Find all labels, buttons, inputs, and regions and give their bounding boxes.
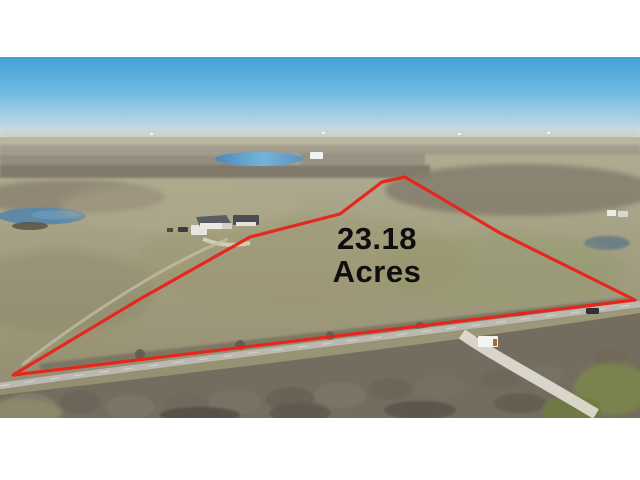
trailer bbox=[167, 228, 173, 232]
shed-gate bbox=[493, 339, 497, 346]
pond-brush bbox=[12, 222, 48, 230]
tree-line-below-lake bbox=[0, 165, 430, 178]
parked-vehicle bbox=[178, 227, 188, 232]
white-barn bbox=[310, 152, 323, 159]
screenshot-canvas: 23.18 Acres bbox=[0, 0, 640, 480]
aerial-photo: 23.18 Acres bbox=[0, 57, 640, 418]
letterbox-top bbox=[0, 0, 640, 57]
pale-field-patch bbox=[60, 182, 300, 232]
acreage-value: 23.18 bbox=[307, 222, 447, 255]
truck-on-road bbox=[586, 308, 599, 314]
lake bbox=[215, 152, 303, 166]
shed bbox=[222, 223, 232, 229]
house2-wall bbox=[236, 222, 256, 226]
acreage-label: 23.18 Acres bbox=[307, 222, 447, 288]
letterbox-bottom bbox=[0, 418, 640, 480]
acreage-unit: Acres bbox=[307, 255, 447, 288]
sky bbox=[0, 57, 640, 141]
